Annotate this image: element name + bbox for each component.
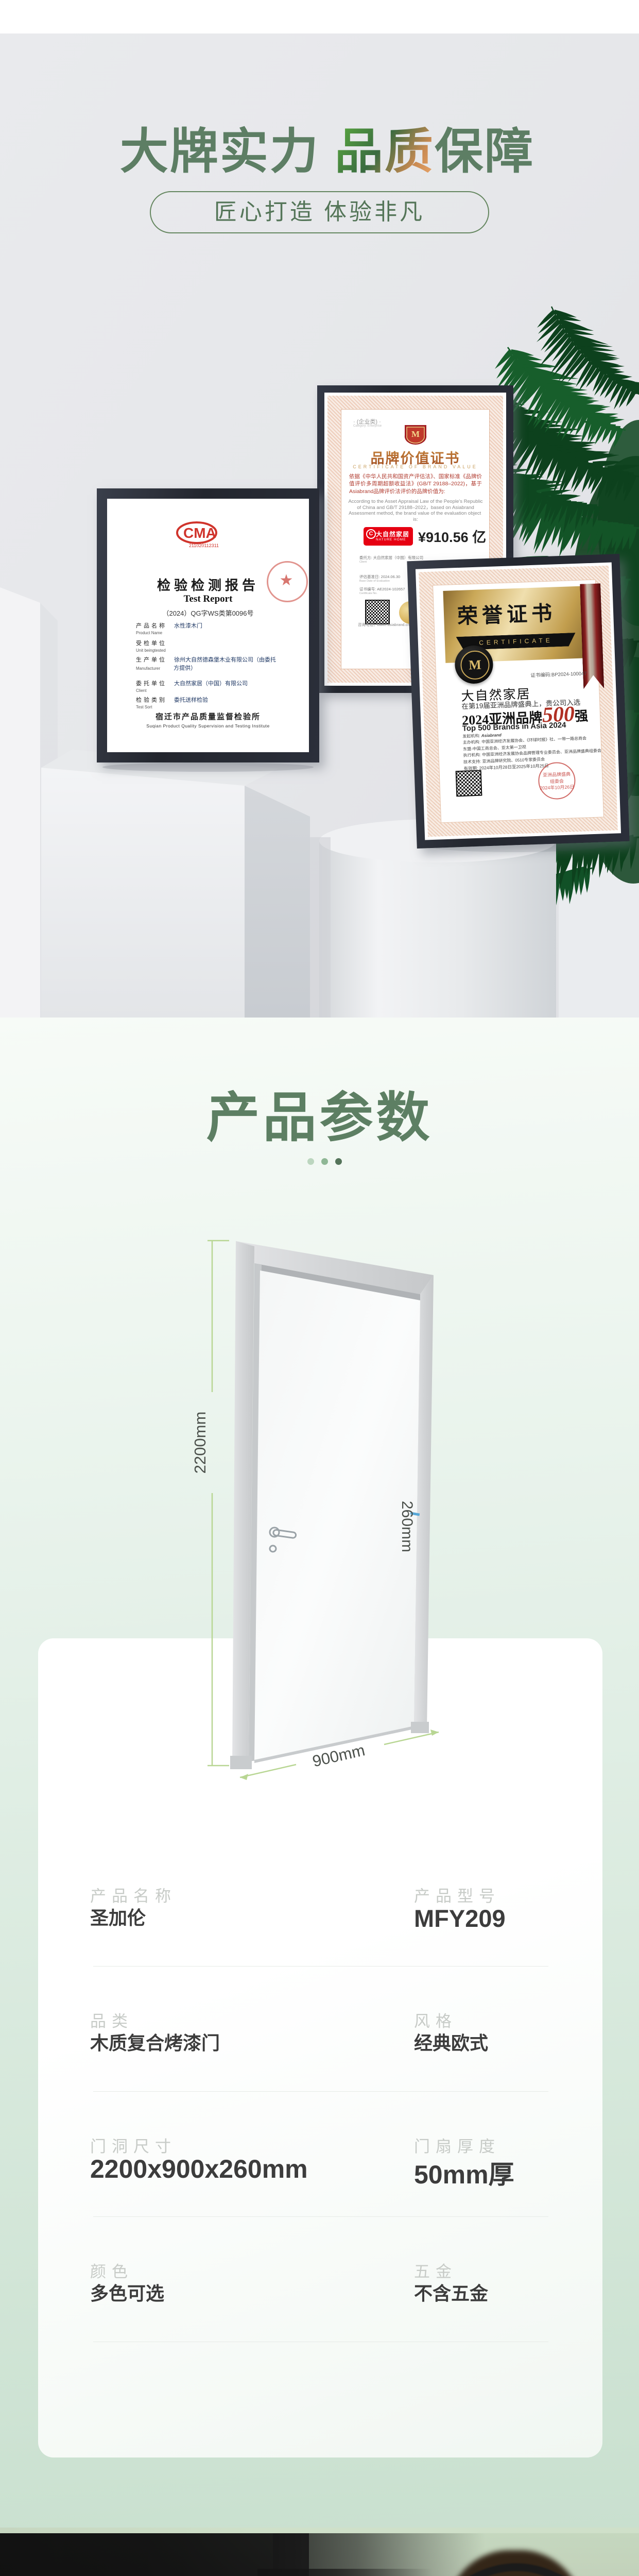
svg-text:260mm: 260mm: [399, 1501, 416, 1552]
svg-text:CMA: CMA: [183, 525, 216, 541]
svg-text:2200mm: 2200mm: [191, 1412, 209, 1474]
svg-text:M: M: [411, 429, 420, 439]
svg-text:211020112311: 211020112311: [189, 543, 219, 548]
